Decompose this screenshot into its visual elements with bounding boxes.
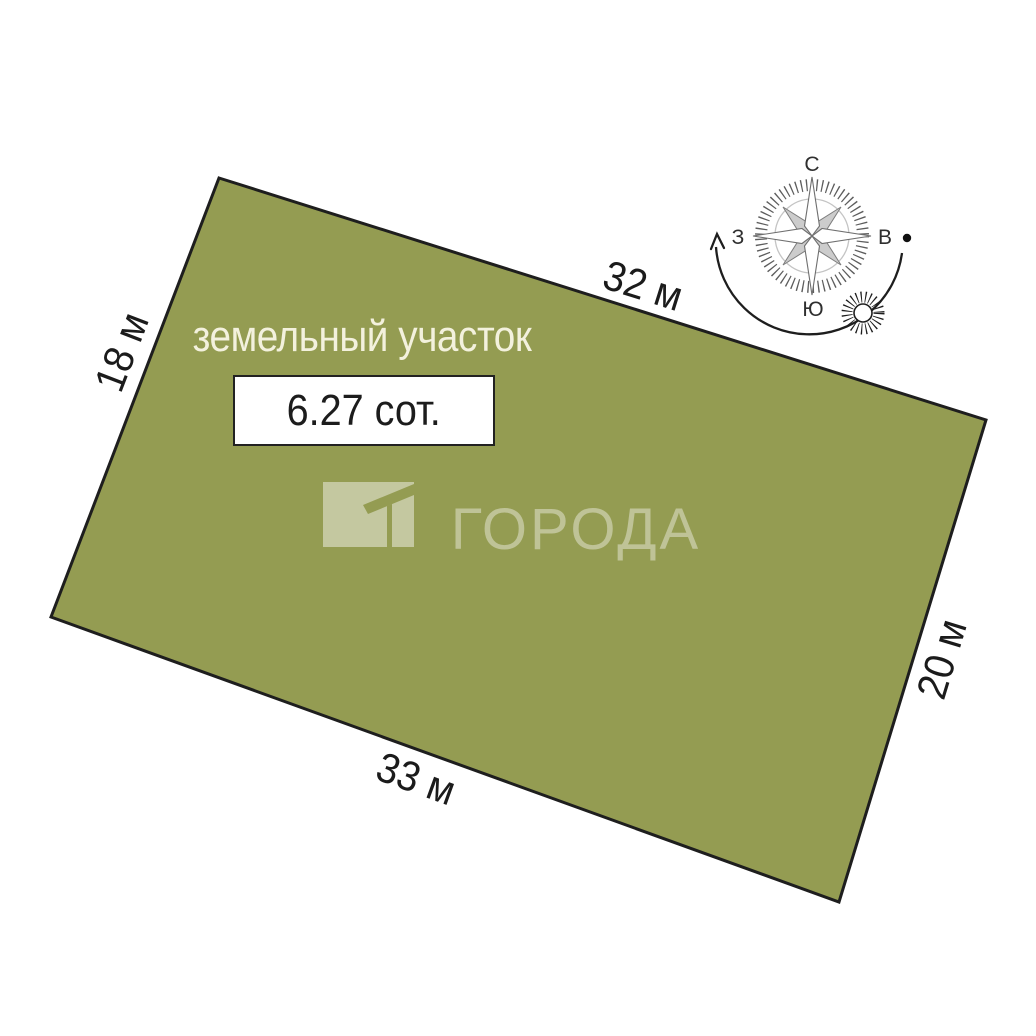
watermark-logo-notch-vertical (387, 504, 392, 547)
sun-path-start-dot (903, 234, 911, 242)
area-box: 6.27 сот. (233, 375, 495, 446)
plot-title: земельный участок (193, 312, 532, 362)
compass-rose: С В Ю З (732, 153, 892, 321)
compass-label-east: В (878, 226, 892, 249)
scheme-canvas: ГОРОДА С В (0, 0, 1036, 1036)
area-value: 6.27 сот. (287, 386, 441, 436)
sun-path-arrowhead (711, 234, 724, 249)
compass-label-west: З (732, 226, 745, 249)
land-plot-scheme: ГОРОДА С В (0, 0, 1036, 1036)
compass-star (753, 177, 871, 295)
compass-label-north: С (804, 153, 819, 176)
sun-icon-disc (854, 304, 872, 322)
watermark-brand-text: ГОРОДА (451, 497, 701, 562)
compass-label-south: Ю (802, 298, 823, 321)
